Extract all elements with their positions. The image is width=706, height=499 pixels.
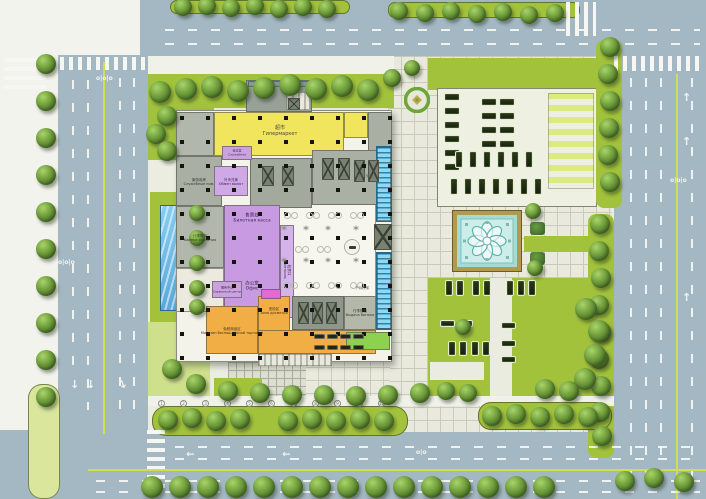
tree — [455, 319, 471, 335]
tree — [482, 406, 502, 426]
planter-icon: * — [325, 225, 331, 236]
tree — [404, 60, 420, 76]
column-dot — [310, 308, 314, 312]
room-label-ru: Гипермаркет — [263, 131, 298, 137]
column-dot — [206, 188, 210, 192]
parked-car — [497, 151, 505, 168]
column-dot — [284, 332, 288, 336]
tree — [253, 77, 275, 99]
column-dot — [232, 260, 236, 264]
tree — [533, 476, 555, 498]
elevator-shaft — [322, 158, 334, 180]
column-dot — [284, 188, 288, 192]
column-dot — [206, 260, 210, 264]
lane-line — [72, 80, 74, 370]
elevator-shaft — [312, 302, 323, 324]
tree — [592, 426, 612, 446]
stall-number: 2 — [180, 400, 187, 407]
tree — [365, 476, 387, 498]
column-dot — [232, 236, 236, 240]
parked-car — [456, 280, 464, 296]
column-dot — [336, 116, 340, 120]
parked-car — [448, 341, 456, 356]
road-marking-glyph: o|o|o — [96, 76, 113, 82]
room-label: 免税商品区Магазин беспошлинной торговли — [201, 327, 263, 335]
tree — [189, 255, 205, 271]
parked-car — [483, 280, 491, 296]
tree — [36, 91, 56, 111]
counter-desk — [340, 334, 351, 339]
column-dot — [310, 140, 314, 144]
parked-car — [499, 98, 515, 106]
elevator-shaft — [262, 166, 274, 186]
tree — [590, 214, 610, 234]
parked-car — [501, 322, 516, 329]
column-dot — [258, 164, 262, 168]
tree — [279, 74, 301, 96]
tree — [600, 37, 620, 57]
atrium-table — [291, 282, 298, 289]
column-dot — [362, 188, 366, 192]
parked-car — [501, 340, 516, 347]
tree — [346, 386, 366, 406]
tree — [36, 165, 56, 185]
elevator-shaft — [368, 160, 379, 182]
tree — [390, 2, 408, 20]
column-dot — [232, 356, 236, 360]
room-label-ru: Сервисный центр — [213, 290, 241, 294]
column-dot — [206, 116, 210, 120]
parked-car — [440, 320, 455, 327]
stall-number: 3 — [202, 400, 209, 407]
atrium-table — [328, 212, 335, 219]
tree — [326, 411, 346, 431]
atrium-table — [313, 212, 320, 219]
column-dot — [180, 140, 184, 144]
tree — [421, 476, 443, 498]
elevator-shaft — [288, 98, 300, 110]
column-dot — [258, 140, 262, 144]
lane-line — [676, 74, 678, 499]
parked-car — [517, 280, 525, 296]
column-dot — [206, 284, 210, 288]
tree — [416, 4, 434, 22]
room-label-ru: Выдача багажа — [346, 313, 375, 317]
column-dot — [180, 164, 184, 168]
parked-car — [506, 178, 514, 195]
parked-car — [499, 112, 515, 120]
room-label: 服务中心Сервисный центр — [213, 286, 241, 293]
column-dot — [258, 356, 262, 360]
column-dot — [388, 140, 392, 144]
site-plan-canvas: ********o|o|oo|o|o↑↑↑↑↑o|o|o↑↑↑o|o123456… — [0, 0, 706, 499]
room-label: 外币兑换Обмен валют — [219, 178, 244, 186]
tree — [270, 0, 288, 18]
column-dot — [388, 260, 392, 264]
tree — [442, 2, 460, 20]
entry-steps-south — [258, 354, 332, 366]
atrium-table — [306, 282, 313, 289]
parking-stalls-striped — [548, 93, 594, 189]
column-dot — [180, 308, 184, 312]
atrium-table — [335, 212, 342, 219]
room-label: 办公室Офис — [245, 282, 259, 293]
lane-line — [630, 78, 632, 478]
room-label: 行李寄存Камера хранения — [184, 234, 216, 242]
column-dot — [336, 164, 340, 168]
parked-car — [444, 107, 460, 115]
column-dot — [388, 212, 392, 216]
counter-desk — [353, 334, 364, 339]
tree — [468, 5, 486, 23]
stall-number: 6 — [268, 400, 275, 407]
column-dot — [258, 188, 262, 192]
crosswalk — [614, 56, 704, 71]
tree — [314, 385, 334, 405]
elevator-shaft — [298, 302, 309, 324]
atrium-table — [306, 212, 313, 219]
column-dot — [258, 116, 262, 120]
sidewalk-north — [148, 56, 394, 74]
room-label: 会议室Служебная — [228, 149, 246, 156]
tree — [206, 411, 226, 431]
lane-line — [87, 80, 89, 410]
road-marking-glyph: ↑ — [86, 378, 95, 389]
tree — [158, 410, 178, 430]
column-dot — [362, 260, 366, 264]
tree — [520, 6, 538, 24]
parked-car — [499, 140, 515, 148]
atrium-table — [295, 246, 302, 253]
column-dot — [284, 236, 288, 240]
path-se-horizontal — [430, 362, 484, 380]
tree — [253, 476, 275, 498]
column-dot — [232, 116, 236, 120]
room-label: 安检区Зона досмотра — [260, 307, 288, 315]
room-label: 上行扶梯 — [355, 174, 369, 178]
tree — [309, 476, 331, 498]
parked-car — [444, 135, 460, 143]
stall-number: 1 — [158, 400, 165, 407]
parked-car — [445, 280, 453, 296]
tree — [506, 404, 526, 424]
parked-car — [455, 151, 463, 168]
tree — [162, 359, 182, 379]
column-dot — [206, 140, 210, 144]
parked-car — [525, 151, 533, 168]
tree — [449, 476, 471, 498]
room-label-ru: Билетная касса — [233, 219, 270, 224]
tree — [305, 78, 327, 100]
lane-line — [88, 469, 706, 471]
parked-car — [478, 178, 486, 195]
tree — [350, 409, 370, 429]
crosswalk — [566, 2, 596, 36]
tree — [530, 407, 550, 427]
column-dot — [336, 356, 340, 360]
column-dot — [362, 164, 366, 168]
column-dot — [388, 116, 392, 120]
parked-car — [520, 178, 528, 195]
tree — [599, 118, 619, 138]
parked-car — [444, 121, 460, 129]
tree — [559, 381, 579, 401]
column-dot — [310, 164, 314, 168]
counter-desk — [340, 345, 351, 350]
tree — [218, 381, 238, 401]
tree — [393, 476, 415, 498]
atrium-table — [357, 212, 364, 219]
lane-line — [175, 446, 700, 448]
tree — [505, 476, 527, 498]
elevator-shaft — [282, 166, 294, 186]
road-marking-glyph: ↑ — [283, 450, 293, 458]
room-label-ru: Контроль — [283, 261, 287, 279]
column-dot — [206, 164, 210, 168]
tree — [225, 476, 247, 498]
column-dot — [336, 140, 340, 144]
tree — [378, 385, 398, 405]
parked-car — [459, 341, 467, 356]
column-dot — [310, 116, 314, 120]
column-dot — [310, 236, 314, 240]
atrium-table — [317, 246, 324, 253]
tree — [186, 374, 206, 394]
tree — [36, 387, 56, 407]
column-dot — [336, 260, 340, 264]
elevator-shaft — [326, 302, 337, 324]
tree — [374, 411, 394, 431]
tree — [578, 407, 598, 427]
counter-desk — [314, 345, 325, 350]
atrium-table — [350, 212, 357, 219]
plaza-circle-feature — [404, 87, 430, 113]
column-dot — [310, 356, 314, 360]
room-label: 售票处Билетная касса — [233, 214, 270, 225]
counter-desk — [327, 334, 338, 339]
room-label-ru: Офис — [246, 287, 259, 292]
room-label-ru: Камера хранения — [184, 238, 216, 242]
parked-car — [481, 140, 497, 148]
tree — [615, 471, 635, 491]
tree — [157, 106, 177, 126]
path-se-vertical — [490, 278, 512, 400]
column-dot — [232, 164, 236, 168]
tree — [554, 404, 574, 424]
tree — [598, 64, 618, 84]
column-dot — [232, 308, 236, 312]
lane-line — [175, 458, 700, 460]
tree — [250, 383, 270, 403]
zone-magenta — [261, 289, 281, 299]
tree — [157, 141, 177, 161]
elevator-shaft — [338, 158, 350, 180]
parked-car — [481, 126, 497, 134]
atrium-table — [324, 246, 331, 253]
column-dot — [388, 284, 392, 288]
tree — [141, 476, 163, 498]
lawn-northeast — [428, 58, 612, 90]
tree — [282, 385, 302, 405]
column-dot — [180, 260, 184, 264]
column-dot — [284, 356, 288, 360]
tree — [36, 202, 56, 222]
tree — [459, 384, 477, 402]
atrium-table — [291, 212, 298, 219]
tree — [337, 476, 359, 498]
tree — [644, 468, 664, 488]
column-dot — [284, 140, 288, 144]
atrium-table — [302, 246, 309, 253]
room-label-zh: 检票口 — [287, 265, 291, 276]
tree — [318, 0, 336, 18]
road-marking-glyph: o|o — [416, 450, 426, 456]
tree — [674, 472, 694, 492]
column-dot — [310, 260, 314, 264]
tree — [494, 3, 512, 21]
tree — [383, 69, 401, 87]
tree — [588, 320, 610, 342]
parked-car — [444, 93, 460, 101]
escalator-1 — [376, 146, 392, 222]
column-dot — [388, 164, 392, 168]
tree — [36, 54, 56, 74]
column-dot — [284, 164, 288, 168]
column-dot — [206, 308, 210, 312]
tree — [477, 476, 499, 498]
tree — [598, 145, 618, 165]
column-dot — [388, 332, 392, 336]
tree — [36, 350, 56, 370]
tree — [36, 239, 56, 259]
lane-line — [119, 78, 121, 410]
road-marking-glyph: ↑ — [682, 292, 691, 303]
room-label-zh: 上行扶梯 — [355, 174, 369, 178]
tree — [230, 409, 250, 429]
tree — [36, 128, 56, 148]
column-dot — [180, 356, 184, 360]
tree — [546, 4, 564, 22]
tree — [600, 172, 620, 192]
parked-car — [471, 341, 479, 356]
room-label: 检票口Контроль — [283, 261, 291, 279]
lane-line — [165, 29, 700, 31]
atrium-center-bar — [349, 246, 356, 249]
column-dot — [362, 140, 366, 144]
tree — [600, 91, 620, 111]
parked-car — [472, 280, 480, 296]
road-marking-glyph: ↑ — [187, 450, 197, 458]
column-dot — [180, 188, 184, 192]
tree — [189, 205, 205, 221]
column-dot — [206, 356, 210, 360]
column-dot — [258, 260, 262, 264]
tree — [589, 241, 609, 261]
tree — [201, 76, 223, 98]
tree — [227, 80, 249, 102]
tree — [527, 260, 543, 276]
road-marking-glyph: ↑ — [682, 92, 691, 103]
column-dot — [310, 188, 314, 192]
parked-car — [469, 151, 477, 168]
lane-line — [103, 62, 105, 434]
column-dot — [388, 188, 392, 192]
counter-desk — [353, 345, 364, 350]
planter-icon: * — [325, 257, 331, 268]
parked-car — [481, 112, 497, 120]
stall-number: 5 — [246, 400, 253, 407]
tree — [36, 313, 56, 333]
tree — [591, 268, 611, 288]
atrium-table — [328, 282, 335, 289]
tree — [169, 476, 191, 498]
column-dot — [336, 188, 340, 192]
column-dot — [336, 308, 340, 312]
planter-icon: * — [353, 225, 359, 236]
stall-number: 4 — [224, 400, 231, 407]
parked-car — [481, 98, 497, 106]
tree — [525, 203, 541, 219]
counter-desk — [314, 334, 325, 339]
parked-car — [464, 178, 472, 195]
room-label-ru: Служебные пом. — [184, 182, 215, 186]
room-label-ru: Служебная — [228, 153, 246, 157]
planter-icon: * — [281, 225, 287, 236]
column-dot — [284, 116, 288, 120]
room-label-ru: Зона досмотра — [260, 311, 288, 315]
column-dot — [388, 308, 392, 312]
tree — [584, 344, 606, 366]
tree — [437, 382, 455, 400]
counter-desk — [327, 345, 338, 350]
column-dot — [180, 116, 184, 120]
lane-line — [691, 78, 693, 478]
column-dot — [362, 236, 366, 240]
column-dot — [232, 140, 236, 144]
column-dot — [388, 236, 392, 240]
tree — [302, 409, 322, 429]
column-dot — [180, 212, 184, 216]
parked-car — [501, 356, 516, 363]
atrium-table — [284, 282, 291, 289]
column-dot — [336, 236, 340, 240]
tree — [331, 75, 353, 97]
road-marking-glyph: o|o|o — [670, 178, 687, 184]
column-dot — [362, 116, 366, 120]
tree — [189, 280, 205, 296]
fountain — [452, 210, 522, 272]
atrium-table — [335, 282, 342, 289]
planter-icon: * — [303, 225, 309, 236]
lane-line — [133, 78, 135, 410]
parked-car — [499, 126, 515, 134]
column-dot — [362, 356, 366, 360]
tree — [575, 298, 597, 320]
tree — [410, 383, 430, 403]
parked-car — [534, 178, 542, 195]
room-label-ru: Обмен валют — [219, 182, 244, 186]
lane-line — [660, 78, 662, 478]
tree — [149, 81, 171, 103]
room-label: 行李提取Выдача багажа — [346, 309, 375, 317]
parked-car — [450, 178, 458, 195]
road-marking-glyph: o|o|o — [58, 260, 75, 266]
parked-car — [483, 151, 491, 168]
planter-icon: * — [303, 257, 309, 268]
parked-car — [492, 178, 500, 195]
tree — [278, 411, 298, 431]
column-dot — [388, 356, 392, 360]
